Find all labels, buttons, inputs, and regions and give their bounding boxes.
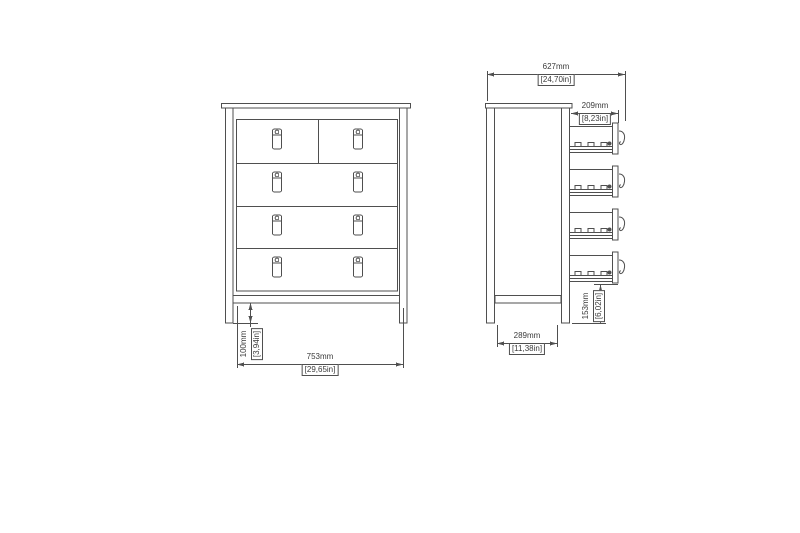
- front-left-leg: [226, 108, 234, 323]
- dimension-label-drawer-extension: 209mm [8,23in]: [579, 101, 611, 125]
- dimension-inch: [24,70in]: [538, 74, 575, 86]
- dimension-inch: [11,38in]: [509, 343, 545, 355]
- drop-pull-handle-icon: [273, 129, 363, 277]
- side-front-leg: [562, 108, 570, 323]
- front-top-panel: [222, 104, 411, 109]
- front-right-leg: [400, 108, 408, 323]
- dimension-mm: 153mm: [581, 292, 590, 321]
- dimension-label-overall-depth: 627mm [24,70in]: [538, 62, 575, 86]
- dimension-mm: 100mm: [239, 330, 248, 359]
- side-top-panel: [486, 104, 573, 109]
- dimension-inch: [29,65in]: [302, 364, 339, 376]
- dimension-mm: 627mm: [542, 62, 571, 71]
- dimension-mm: 289mm: [513, 331, 542, 340]
- dimension-inch: [8,23in]: [579, 113, 611, 125]
- dimension-inch: [3,94in]: [251, 328, 263, 360]
- side-bottom-rail: [495, 296, 561, 304]
- dimension-label-bottom-drawer-clearance: 153mm [6,02in]: [581, 290, 605, 322]
- dimension-mm: 209mm: [581, 101, 610, 110]
- front-drawer-frame: [237, 120, 398, 292]
- drawing-canvas: [0, 0, 800, 533]
- side-back-leg: [487, 108, 495, 323]
- dimension-label-base-depth: 289mm [11,38in]: [509, 331, 545, 355]
- dimension-label-leg-height: 100mm [3,94in]: [239, 328, 263, 360]
- front-bottom-rail: [233, 296, 400, 304]
- furniture-dimension-drawing: 627mm [24,70in] 209mm [8,23in] 153mm [6,…: [0, 0, 800, 533]
- dimension-label-front-width: 753mm [29,65in]: [302, 352, 339, 376]
- front-view: [222, 104, 411, 324]
- open-drawer: [570, 123, 625, 283]
- dimension-mm: 753mm: [306, 352, 335, 361]
- dimension-inch: [6,02in]: [593, 290, 605, 322]
